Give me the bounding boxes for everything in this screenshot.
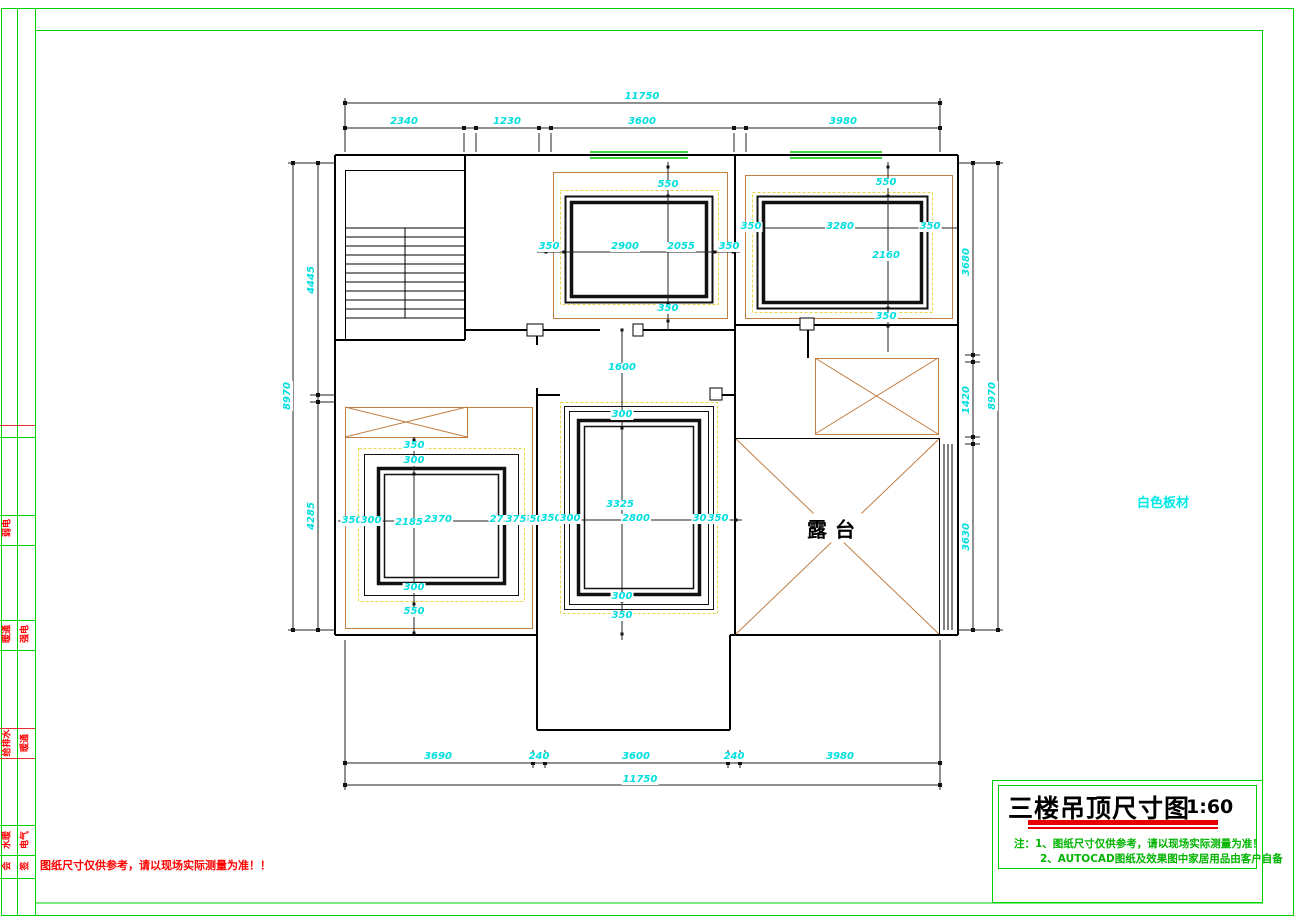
wall-outline [335,155,958,730]
dimension-label: 350 [919,222,942,232]
dimension-label: 550 [403,607,426,617]
dimension-label: 4445 [307,265,317,295]
dimension-label: 300 [611,592,634,602]
dimension-label: 2160 [871,251,901,261]
dimension-label: 3630 [962,522,972,552]
dimension-label: 11750 [624,92,661,102]
dimension-label: 3325 [605,500,635,510]
ceiling-borders [345,173,953,636]
signoff-label: 水暖 [4,831,13,849]
dimension-label: 300 [403,583,426,593]
dimension-label: 350 [707,514,730,524]
dimension-label: 8970 [988,381,998,411]
title-block-note-1: 注：1、图纸尺寸仅供参考，请以现场实际测量为准！ [1014,836,1263,851]
drawing-sheet: 1175023401230360039803690240360024039801… [0,0,1298,920]
dimension-label: 2900 [610,242,640,252]
terrace-room-label: 露台 [805,514,865,543]
dimension-label: 2185 [394,518,424,528]
dimension-label: 350 [538,242,561,252]
dimension-label: 8970 [283,381,293,411]
dimension-label: 350 [657,304,680,314]
dimension-label: 2055 [666,242,696,252]
dimension-label: 2370 [423,515,453,525]
dimension-label: 550 [657,180,680,190]
signoff-label: 会 [4,861,13,870]
dimension-label: 3600 [621,752,651,762]
signoff-label: 给排水 [4,729,13,756]
signoff-label: 强电 [22,625,31,643]
dimension-label: 300 [559,514,582,524]
dimension-label: 4285 [307,501,317,531]
dimension-label: 11750 [622,775,659,785]
dimension-label: 3690 [423,752,453,762]
dimension-label: 3980 [828,117,858,127]
signoff-label: 暖通 [4,625,13,643]
dimension-label: 1600 [607,363,637,373]
reference-warning-note: 图纸尺寸仅供参考，请以现场实际测量为准！！ [40,857,271,873]
dimension-label: 300 [611,410,634,420]
dimension-label: 2340 [389,117,419,127]
dimension-label: 350 [403,441,426,451]
dimension-label: 3600 [627,117,657,127]
material-note: 白色板材 [1137,492,1189,511]
dimension-label: 375 [505,515,528,525]
dimension-label: 350 [740,222,763,232]
signoff-label: 电气 [22,831,31,849]
drawing-scale: 1:60 [1186,796,1233,818]
title-block-note-2: 2、AUTOCAD图纸及效果图中家居用品由客户自备 [1040,851,1283,866]
dimension-label: 240 [528,752,551,762]
dimension-label: 350 [875,312,898,322]
staircase [345,171,465,340]
dimension-label: 550 [875,178,898,188]
signoff-label: 签 [22,861,31,870]
dimension-label: 3980 [825,752,855,762]
dimension-label: 350 [611,611,634,621]
dimension-label: 2800 [621,514,651,524]
dimension-label: 1420 [962,385,972,415]
dimension-label: 350 [718,242,741,252]
dimension-label: 300 [403,456,426,466]
dashed-ceiling-lines [359,191,933,614]
dimension-label: 240 [723,752,746,762]
title-underline-bar [1028,820,1218,825]
signoff-label: 弱电 [4,519,13,537]
dimension-label: 1230 [492,117,522,127]
dimension-label: 300 [360,516,383,526]
title-underline-rule [1028,827,1218,829]
dimension-label: 3680 [962,247,972,277]
signoff-label: 暖通 [22,734,31,752]
dimension-label: 3280 [825,222,855,232]
